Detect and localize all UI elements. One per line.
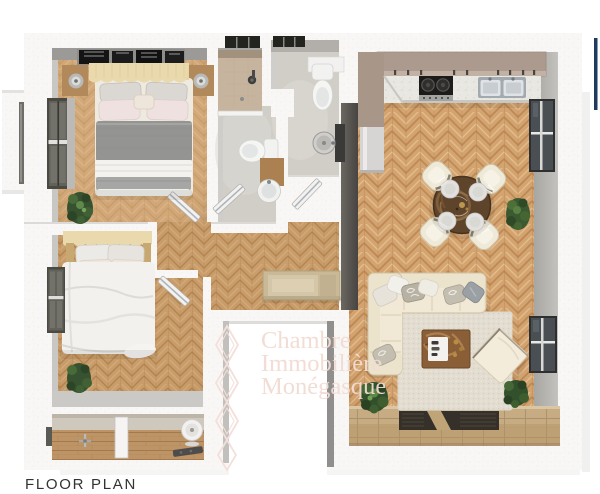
svg-text:Monégasque: Monégasque xyxy=(261,373,386,400)
svg-text:FLOOR PLAN: FLOOR PLAN xyxy=(25,476,137,493)
